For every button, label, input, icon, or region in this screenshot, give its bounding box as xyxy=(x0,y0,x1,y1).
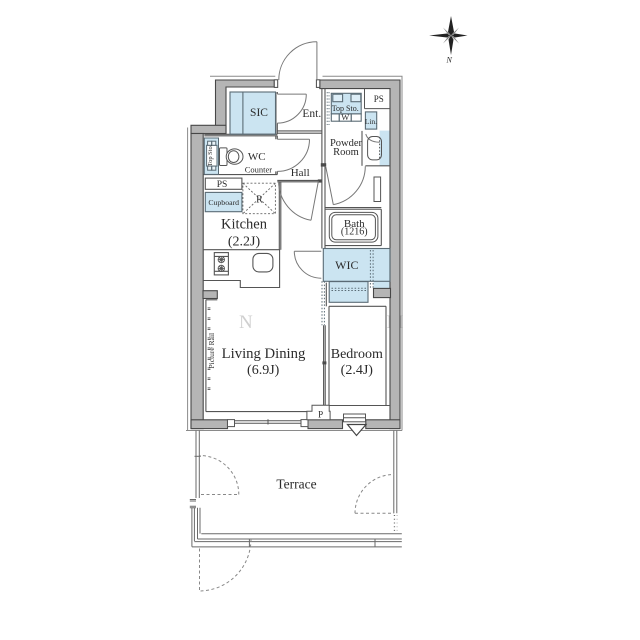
svg-text:Kitchen: Kitchen xyxy=(221,217,268,233)
svg-text:Ent.: Ent. xyxy=(302,108,321,120)
svg-text:Hall: Hall xyxy=(291,167,310,179)
svg-text:(2.4J): (2.4J) xyxy=(341,363,374,378)
svg-text:Cupboard: Cupboard xyxy=(208,198,239,207)
svg-text:N: N xyxy=(446,56,453,65)
svg-text:(1216): (1216) xyxy=(341,226,368,237)
svg-text:P: P xyxy=(318,410,323,420)
svg-text:WC: WC xyxy=(248,151,266,163)
svg-text:SIC: SIC xyxy=(250,107,268,119)
svg-text:Room: Room xyxy=(333,147,359,158)
svg-text:Top Sto.: Top Sto. xyxy=(207,144,214,166)
svg-text:WIC: WIC xyxy=(335,258,358,272)
svg-text:Terrace: Terrace xyxy=(276,477,316,492)
svg-text:R: R xyxy=(256,195,263,206)
svg-text:(6.9J): (6.9J) xyxy=(247,363,280,378)
svg-text:PS: PS xyxy=(374,94,384,104)
svg-text:Counter: Counter xyxy=(245,165,273,175)
svg-text:Living Dining: Living Dining xyxy=(222,346,306,362)
svg-text:N: N xyxy=(239,312,253,333)
svg-text:Bedroom: Bedroom xyxy=(331,347,383,362)
svg-text:PS: PS xyxy=(217,180,228,190)
svg-text:(2.2J): (2.2J) xyxy=(228,234,261,249)
svg-text:W: W xyxy=(341,112,349,122)
svg-text:Lin.: Lin. xyxy=(365,117,377,126)
